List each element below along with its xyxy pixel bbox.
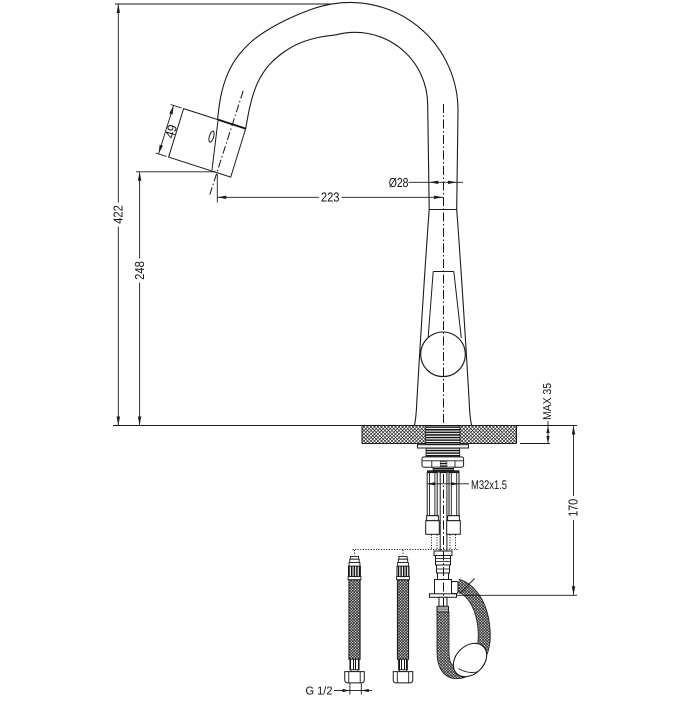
svg-text:223: 223 [321,190,340,205]
svg-text:G 1/2: G 1/2 [306,686,333,698]
svg-text:MAX 35: MAX 35 [542,383,554,420]
svg-text:422: 422 [111,205,126,224]
svg-text:170: 170 [566,499,581,517]
svg-text:248: 248 [132,261,147,280]
svg-text:M32x1.5: M32x1.5 [471,478,507,492]
svg-text:Ø28: Ø28 [389,175,409,190]
